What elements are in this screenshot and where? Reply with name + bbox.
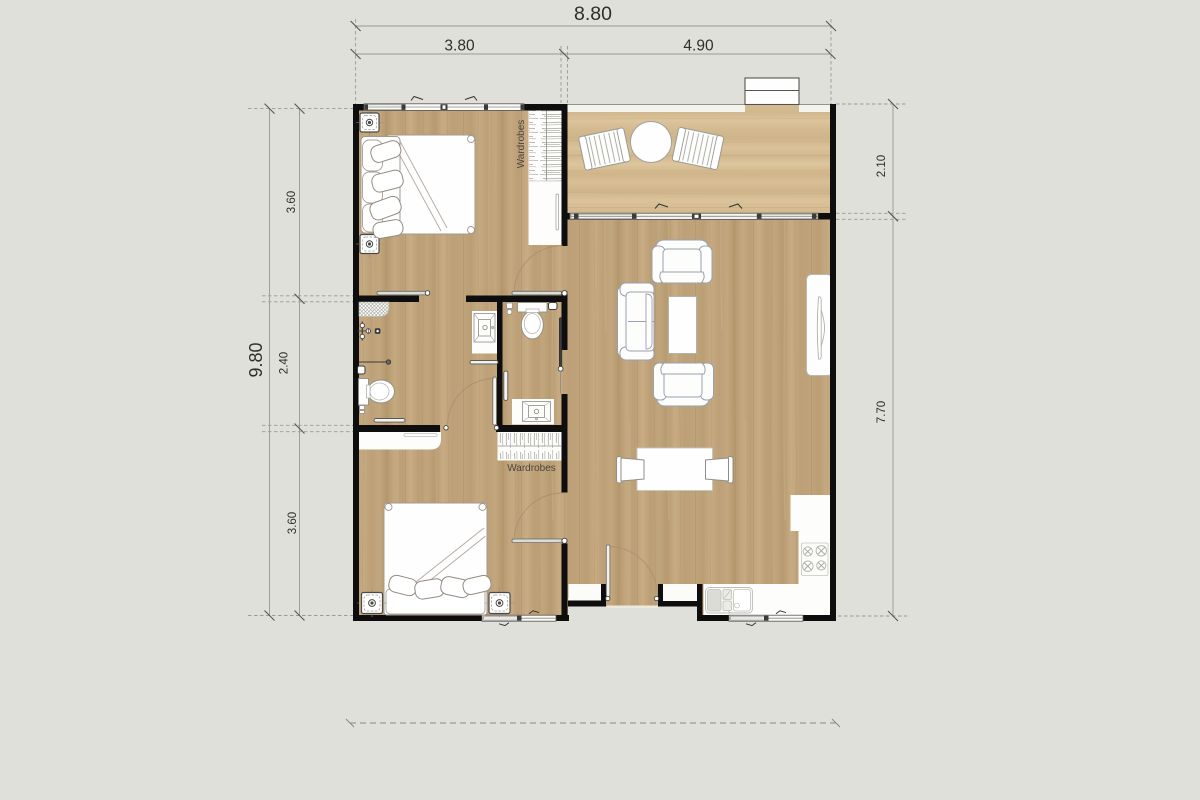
svg-text:Wardrobes: Wardrobes <box>507 463 556 474</box>
svg-text:3.60: 3.60 <box>286 191 298 213</box>
svg-text:Wardrobes: Wardrobes <box>516 120 527 169</box>
svg-text:7.70: 7.70 <box>876 401 888 423</box>
svg-text:9.80: 9.80 <box>246 342 266 377</box>
svg-text:3.80: 3.80 <box>444 38 475 55</box>
svg-text:8.80: 8.80 <box>574 3 612 25</box>
svg-text:4.90: 4.90 <box>683 38 714 55</box>
svg-text:3.60: 3.60 <box>287 512 299 534</box>
svg-text:2.40: 2.40 <box>279 352 291 374</box>
svg-text:2.10: 2.10 <box>876 155 888 177</box>
